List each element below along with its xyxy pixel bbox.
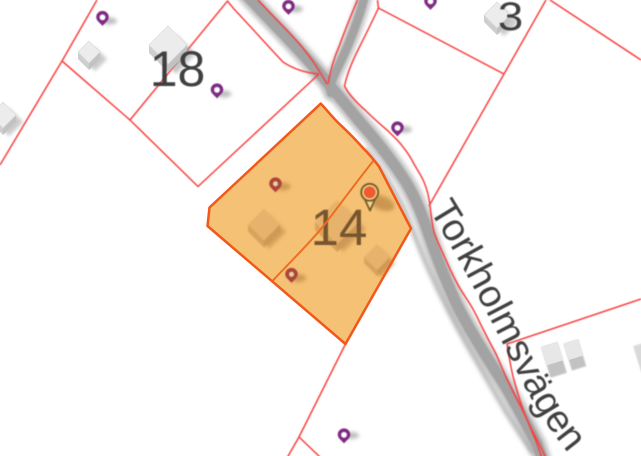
svg-text:3: 3	[498, 0, 523, 39]
svg-text:18: 18	[150, 41, 206, 97]
svg-text:14: 14	[311, 199, 368, 256]
